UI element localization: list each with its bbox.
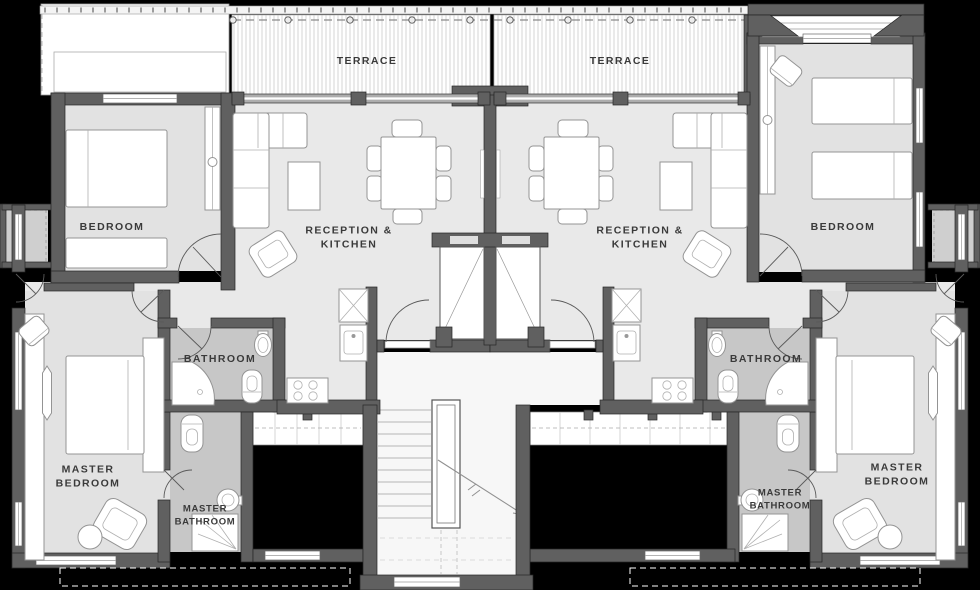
kitchen-sink-icon <box>340 325 367 361</box>
fridge-icon <box>612 289 641 322</box>
room-label-bathroom-left: BATHROOM <box>184 353 256 367</box>
bed-icon <box>812 78 912 124</box>
room-label-reception-left: RECEPTION & KITCHEN <box>305 224 392 251</box>
room-label-master-bathroom-right: MASTER BATHROOM <box>750 487 811 514</box>
floor-plan: TERRACE TERRACE RECEPTION & KITCHEN RECE… <box>0 0 980 590</box>
roof-overhang-left <box>41 4 229 95</box>
room-label-master-bedroom-right: MASTER BEDROOM <box>865 461 930 488</box>
balcony-left <box>0 204 52 268</box>
mirror-icon <box>43 366 52 420</box>
daybed-icon <box>66 238 167 268</box>
desk-icon <box>936 314 955 560</box>
bay-window-right <box>748 4 924 37</box>
bed-icon <box>66 338 164 472</box>
room-label-terrace-left: TERRACE <box>337 55 398 69</box>
glazing-left <box>232 92 490 105</box>
room-label-bathroom-right: BATHROOM <box>730 353 802 367</box>
roof-edge-band <box>40 6 752 14</box>
coffee-table-icon <box>660 162 692 210</box>
wardrobe-icon <box>205 107 220 210</box>
desk-icon <box>25 314 44 560</box>
toilet-icon <box>242 370 262 403</box>
kitchen-sink-icon <box>613 325 640 361</box>
balcony-right <box>928 204 980 268</box>
toilet-icon <box>777 415 799 452</box>
shower-icon <box>742 514 788 551</box>
bed-icon <box>66 130 167 207</box>
stove-icon <box>287 378 328 403</box>
bed-icon <box>812 152 912 199</box>
toilet-icon <box>718 370 738 403</box>
mirror-icon <box>929 366 938 420</box>
fridge-icon <box>339 289 368 322</box>
coffee-table-icon <box>288 162 320 210</box>
glazing-right <box>494 92 750 105</box>
room-label-reception-right: RECEPTION & KITCHEN <box>596 224 683 251</box>
stove-icon <box>652 378 693 403</box>
room-label-master-bedroom-left: MASTER BEDROOM <box>56 463 121 490</box>
room-label-bedroom-right: BEDROOM <box>811 221 876 235</box>
floor-plan-drawing <box>0 0 980 590</box>
room-label-bedroom-left: BEDROOM <box>80 221 145 235</box>
toilet-icon <box>181 415 203 452</box>
side-table-icon <box>878 525 902 549</box>
room-label-master-bathroom-left: MASTER BATHROOM <box>175 503 236 530</box>
bed-icon <box>816 338 914 472</box>
side-table-icon <box>78 525 102 549</box>
stair-newel <box>432 400 460 528</box>
room-label-terrace-right: TERRACE <box>590 55 651 69</box>
